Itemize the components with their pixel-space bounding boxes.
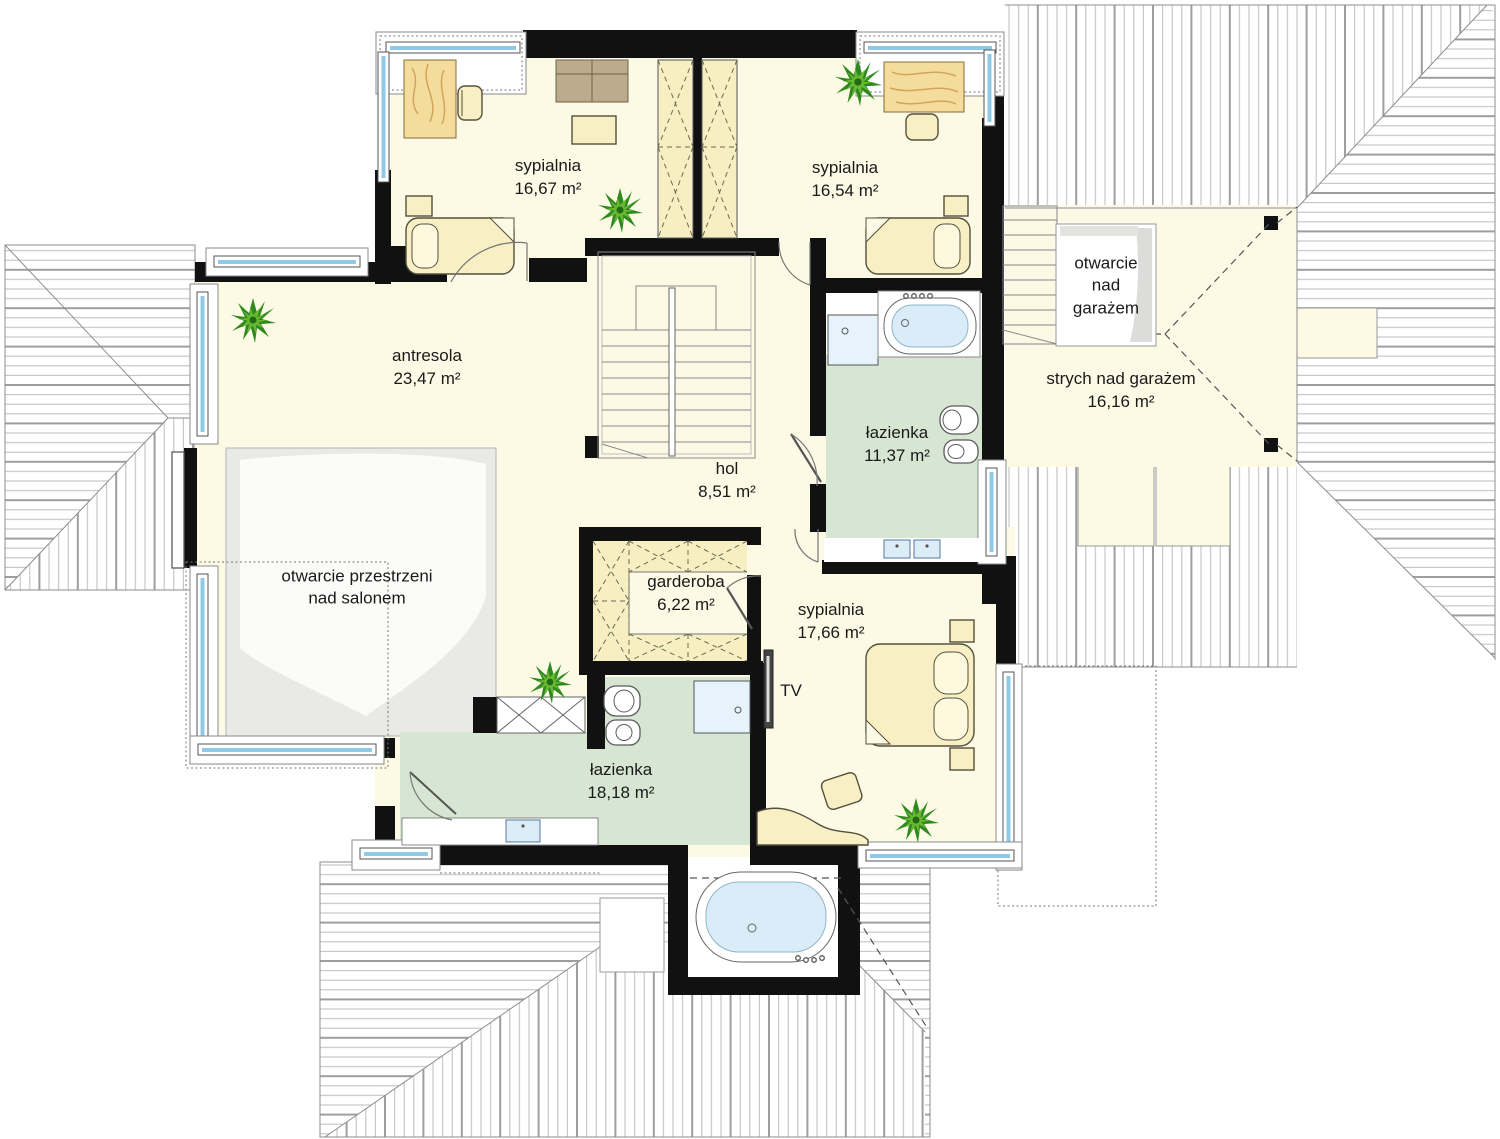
room-label-hol: hol8,51 m² [698,436,756,526]
desk-2 [884,62,964,112]
room-label-sypialnia-1: sypialnia16,67 m² [514,133,581,223]
sink-1a [884,540,910,558]
nightstand-3b [950,748,974,770]
room-label-lazienka-1: łazienka11,37 m² [864,400,930,490]
shower-2 [694,681,750,733]
bidet-1 [944,440,978,463]
room-label-antresola: antresola23,47 m² [392,323,462,413]
toilet-1 [940,406,978,434]
floor-plan-drawing [0,0,1500,1139]
room-label-sypialnia-3: sypialnia17,66 m² [797,577,864,667]
room-label-garderoba: garderoba6,22 m² [647,549,725,639]
sink-2 [506,820,540,842]
hall-closet [497,697,585,733]
dormer-side-panel [600,898,664,972]
room-label-sypialnia-2: sypialnia16,54 m² [811,135,878,225]
desk-1 [404,60,456,138]
label-opening-over-living-room: otwarcie przestrzeni nad salonem [281,566,432,611]
nightstand-2 [944,196,968,216]
room-label-lazienka-2: łazienka18,18 m² [587,737,654,827]
nightstand-1 [406,196,432,216]
chimney [172,452,184,568]
shower-1 [828,315,878,365]
label-opening-over-garage: otwarcie nad garażem [1073,252,1139,319]
room-label-strych: strych nad garażem16,16 m² [1046,346,1195,436]
vanity-counter [402,818,598,845]
floor-plan-canvas: sypialnia16,67 m² sypialnia16,54 m² antr… [0,0,1500,1139]
sink-1b [914,540,940,558]
label-tv: TV [780,680,802,702]
roof-left [5,245,195,590]
chair-2 [906,114,938,140]
nightstand-3a [950,620,974,642]
